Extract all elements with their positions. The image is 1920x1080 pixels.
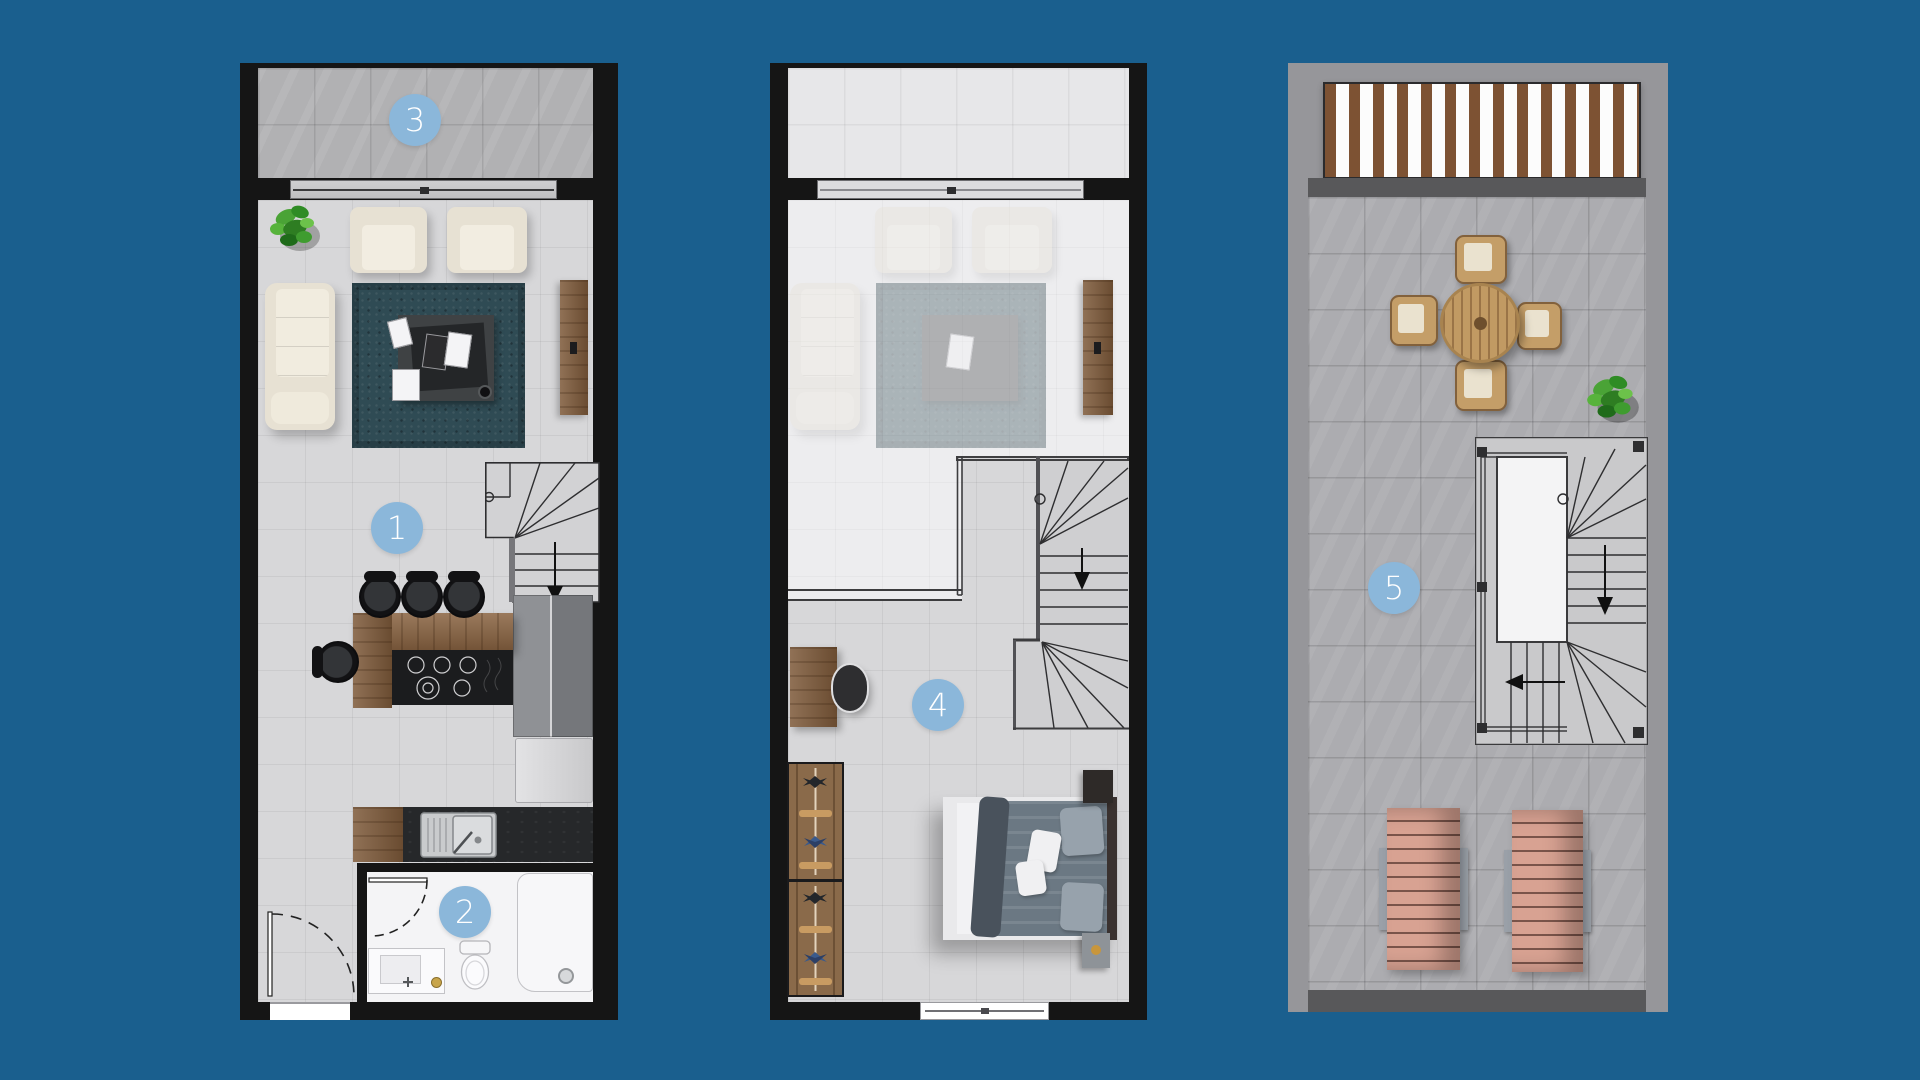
pergola [1323,82,1641,179]
terrace-chair [1455,235,1507,284]
shower-tray [517,873,593,992]
nightstand [1083,770,1113,803]
table-knob-icon [480,387,490,397]
bar-stool [401,576,443,618]
open-magazine [444,331,472,368]
plan-ground-floor: 3 [240,63,618,1020]
desk-chair [833,665,867,711]
plan-upper-floor: 4 [770,63,1147,1020]
bar-stool [317,641,359,683]
sofa-below [790,283,860,430]
bedroom-window [920,1002,1049,1020]
cabinet-handle-icon [570,342,577,354]
tall-shelf [1083,280,1113,415]
sofa-cushions [276,289,330,377]
kitchen-tall-cabinets [513,595,593,737]
badge-number: 4 [928,686,948,724]
chair-cushion [1525,310,1549,337]
terrace-wall [1308,178,1646,197]
potted-plant-icon [1581,368,1645,432]
faucet-icon [407,977,409,987]
staircase-roof [1475,437,1648,745]
terrace-chair [1517,302,1562,350]
armchair-below [972,207,1052,273]
sofa-armrest [271,392,330,424]
bathroom-vanity [368,948,445,994]
badge-number: 1 [387,509,407,547]
desk [790,647,837,727]
wardrobe [787,762,844,881]
badge-number: 2 [455,893,475,931]
terrace-chair [1455,360,1507,411]
round-dining-table [1440,283,1520,363]
window-handle-icon [981,1008,989,1014]
window-handle-icon [420,187,429,194]
armchair [350,207,427,273]
bathroom-wall [357,872,367,1002]
plan-roof-terrace: 5 [1288,63,1668,1012]
sun-lounger [1512,810,1583,972]
pillow [1060,882,1104,932]
floor-plans-poster: 3 [0,0,1920,1080]
refrigerator [515,738,593,803]
room-badge-bedroom: 4 [912,679,964,731]
bar-stool [359,576,401,618]
badge-number: 3 [405,101,425,139]
bathroom-door [367,872,447,952]
lounger-rail [1459,848,1468,930]
badge-number: 5 [1384,569,1404,607]
terrace-chair [1390,295,1438,346]
chair-cushion [1464,369,1492,398]
pillow [1059,806,1104,857]
wardrobe [787,880,844,997]
double-bed [943,797,1117,940]
counter-cabinet [353,807,403,862]
magazine-below [946,333,974,370]
armchair-seat [362,225,414,269]
room-badge-living: 1 [371,502,423,554]
tv-cabinet [560,280,588,415]
staircase-upper [956,456,1129,730]
potted-plant-icon [264,198,326,260]
room-badge-roof-terrace: 5 [1368,562,1420,614]
staircase-ground [485,462,600,603]
armchair [447,207,527,273]
toilet [455,939,495,993]
accent-pillow [1015,859,1047,897]
room-badge-balcony: 3 [389,94,441,146]
room-badge-bathroom: 2 [439,886,491,938]
cooktop [392,650,513,705]
shower-drain-icon [558,968,574,984]
terrace-wall [1308,990,1646,1012]
sofa [265,283,335,430]
entry-threshold [270,1002,350,1020]
chair-cushion [1464,243,1492,271]
chair-cushion [1398,304,1424,333]
headboard [1107,797,1117,940]
bar-stool [443,576,485,618]
tray [392,369,420,401]
bathroom-wall [357,863,593,872]
void-railing [788,589,962,601]
armchair-below [875,207,952,273]
gold-knob-icon [431,977,442,988]
kitchen-sink [420,812,497,858]
entry-door [258,908,358,1002]
sun-lounger [1387,808,1460,970]
washbasin [380,955,421,983]
lounger-rail [1582,850,1591,932]
sliding-window [290,180,557,199]
shelf-handle-icon [1094,342,1101,354]
window-wall [258,178,593,200]
nightstand [1082,933,1110,968]
lamp-icon [1091,945,1101,955]
armchair-seat [460,225,514,269]
